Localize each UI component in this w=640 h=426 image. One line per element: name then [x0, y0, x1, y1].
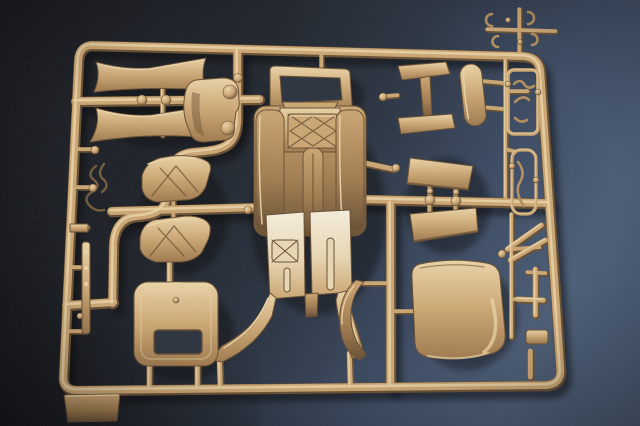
sprue-photo: Photograph of a dark-yellow tan plastic …: [0, 0, 640, 426]
vignette: [0, 0, 640, 426]
sprue-photograph: Photograph of a dark-yellow tan plastic …: [0, 0, 640, 426]
